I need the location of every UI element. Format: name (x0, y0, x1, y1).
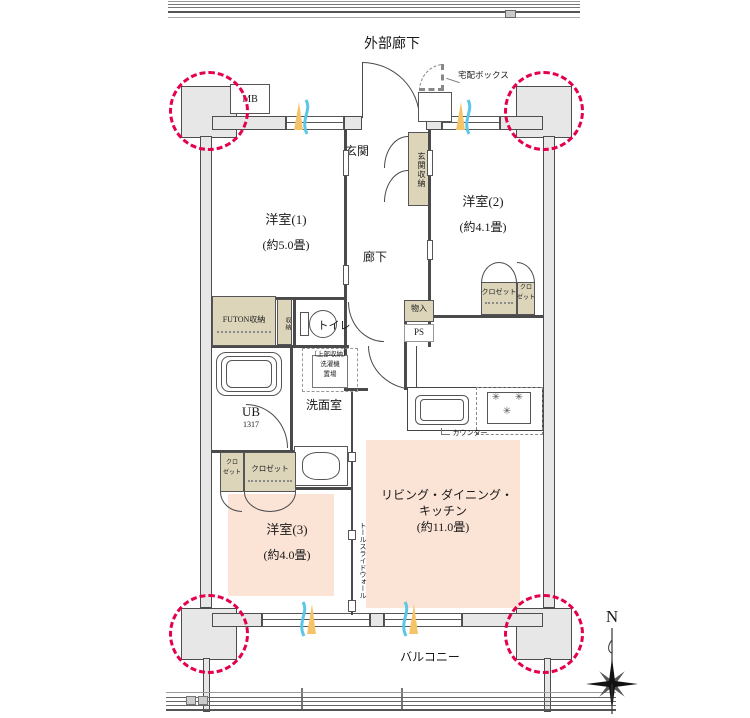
washer-label: 〔上部収納〕 洗濯機 置場 (300, 350, 360, 379)
sliding-door-mark (343, 265, 349, 285)
washer-line1: 洗濯機 (320, 361, 340, 368)
western3-name: 洋室(3) (247, 522, 327, 538)
ldk-name-line2: キッチン (381, 504, 505, 519)
entrance-door-arc (362, 62, 420, 119)
pipe-space-label: PS (404, 327, 434, 338)
western1-name: 洋室(1) (246, 212, 326, 228)
closet-label-w2: クロゼット (481, 288, 517, 297)
entrance-storage-door-arc (384, 170, 408, 202)
closet-door-arc (220, 492, 242, 512)
delivery-box-label: 宅配ボックス (458, 70, 522, 81)
compass-north-label: N (598, 606, 626, 627)
wall-bottom-mullion (370, 613, 384, 627)
pillar-circle-bottom-right (504, 594, 584, 674)
airflow-icon (290, 98, 314, 136)
ldk-door-leaf (416, 346, 417, 390)
kitchen-sink-inner (420, 399, 464, 421)
balcony-drain-mark (186, 696, 196, 705)
tall-slide-wall-label: トールスライドウォール (355, 508, 367, 612)
balcony-edge-line (166, 697, 616, 698)
closet-rail-w2 (485, 302, 513, 304)
delivery-box (418, 92, 452, 122)
storage-label: 物入 (404, 304, 434, 314)
slide-wall-cap (348, 452, 356, 462)
balcony-edge-line (166, 701, 616, 702)
entrance-storage-door-arc (384, 136, 408, 168)
window-bottom-right (384, 613, 462, 627)
closet-door-arc (517, 262, 535, 283)
compass-icon (584, 626, 640, 714)
pillar-circle-top-left (169, 71, 249, 151)
bath-door-arc (246, 404, 288, 448)
washer-upper-note: 〔上部収納〕 (311, 351, 350, 358)
wall-right (543, 136, 555, 608)
delivery-box-arc (419, 64, 444, 91)
closet-door-arc (481, 262, 499, 283)
sliding-door-mark (427, 240, 433, 260)
wall-interior (431, 315, 543, 318)
toilet-label: トイレ (312, 320, 356, 334)
balcony-edge-line (166, 705, 616, 706)
hallway-label: 廊下 (355, 250, 395, 265)
wall-interior (290, 348, 293, 450)
balcony-drain-mark (198, 696, 208, 705)
futon-storage-rail (217, 331, 271, 333)
bathtub-inner2 (226, 360, 272, 388)
closet-rail-w3 (248, 480, 292, 482)
ldk-size: (約11.0畳) (381, 520, 505, 535)
range-hood-dashed (476, 387, 543, 435)
tall-slide-wall-line (351, 390, 353, 615)
closet-small-bottom-w3: ゼット (220, 470, 244, 478)
closet-label-w3: クロゼット (244, 464, 296, 473)
western2-size: (約4.1畳) (443, 220, 523, 235)
floor-plan: 外部廊下 MB 宅配ボックス 玄関 玄関収納 (0, 0, 750, 718)
airflow-icon (296, 600, 320, 638)
wall-left (200, 136, 212, 608)
airflow-icon (452, 98, 476, 136)
balcony-edge-line (166, 692, 616, 693)
counter-label: カウンター (448, 429, 492, 438)
ldk-name-line1: リビング・ダイニング・ (381, 488, 505, 503)
exterior-corridor-label: 外部廊下 (337, 36, 447, 54)
wall-interior (296, 487, 352, 490)
balcony-label: バルコニー (395, 650, 465, 665)
vanity-basin (302, 452, 340, 480)
wall-interior (293, 300, 296, 348)
closet-small-top-w3: クロ (220, 460, 244, 468)
side-storage-label: 収納 (280, 306, 290, 342)
entrance-storage-label: 玄関収納 (412, 138, 426, 202)
sliding-door-mark (343, 150, 349, 176)
sliding-door-mark (427, 150, 433, 176)
closet-small-top-w2: クロ (517, 285, 535, 293)
pillar-circle-top-right (504, 71, 584, 151)
balcony-edge-line (166, 709, 616, 711)
pillar-circle-bottom-left (169, 594, 249, 674)
futon-storage-label: FUTON収納 (212, 315, 276, 325)
closet-door-arc (499, 262, 517, 283)
western1-size: (約5.0畳) (246, 238, 326, 253)
corridor-joint-mark (505, 10, 516, 18)
western3-size: (約4.0畳) (247, 548, 327, 563)
ldk-door-arc (368, 346, 416, 390)
wall-top-segment (344, 116, 362, 130)
closet-box-w2 (481, 282, 517, 315)
western2-name: 洋室(2) (443, 194, 523, 210)
closet-small-bottom-w2: ゼット (517, 295, 535, 303)
washer-line2: 置場 (324, 371, 337, 378)
washroom-label: 洗面室 (296, 398, 352, 413)
airflow-icon (398, 600, 422, 638)
toilet-tank (300, 312, 309, 336)
